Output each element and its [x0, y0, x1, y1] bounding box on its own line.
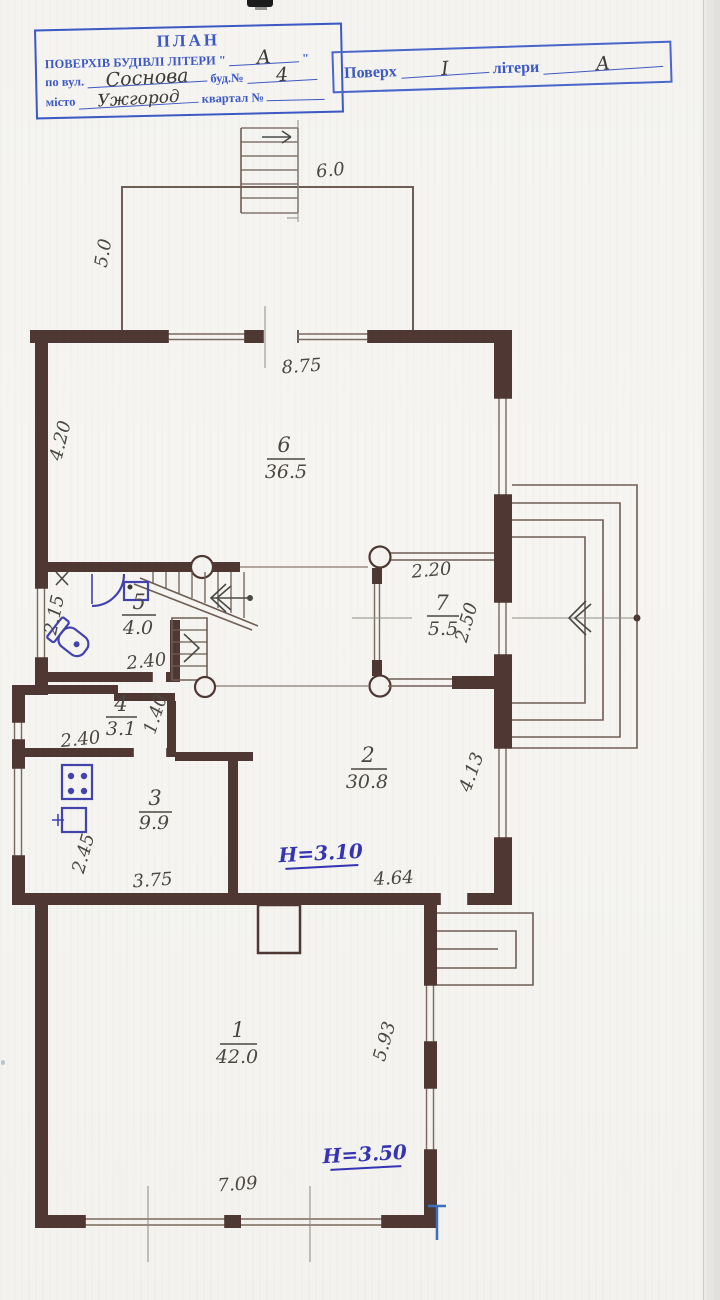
svg-text:Н=3.50: Н=3.50 [321, 1140, 408, 1168]
scan-artifact-top [247, 0, 273, 7]
floor-value: І [400, 61, 489, 79]
letters-value: А [543, 55, 664, 75]
city-label: місто [46, 95, 76, 110]
room-label-1: 1 42.0 [215, 1018, 258, 1068]
floor-plan-drawing: 6.0 5.0 [0, 0, 720, 1300]
svg-text:9.9: 9.9 [139, 812, 169, 834]
letters-label: літери [492, 59, 539, 77]
dim-room7-top: 2.20 [410, 558, 453, 583]
window-bottom-2 [241, 1215, 382, 1228]
svg-text:3: 3 [148, 786, 161, 810]
svg-text:1: 1 [231, 1018, 244, 1042]
house-label: буд.№ [210, 71, 244, 86]
window-kitchen-1 [12, 722, 25, 740]
column-stairs-bottom [195, 677, 215, 697]
letter-suffix: " [302, 51, 309, 65]
height-room1: Н=3.50 [321, 1140, 408, 1170]
top-terrace: 6.0 5.0 [91, 120, 413, 332]
room-label-6: 6 36.5 [265, 433, 307, 483]
window-room1-east-1 [424, 985, 437, 1042]
column-bay-north [370, 547, 391, 568]
dim-room7-right: 2.50 [451, 600, 483, 645]
room-label-3: 3 9.9 [139, 786, 172, 834]
room-label-5: 5 4.0 [122, 590, 156, 639]
dim-room4-width: 2.40 [58, 727, 101, 752]
dim-room6-top: 8.75 [281, 355, 322, 379]
svg-text:2: 2 [360, 743, 374, 767]
block-label: квартал № [201, 90, 264, 105]
svg-text:Н=3.10: Н=3.10 [277, 839, 364, 867]
door-swing-arc [92, 574, 124, 606]
door-to-terrace [263, 330, 298, 343]
svg-text:42.0: 42.0 [215, 1046, 258, 1068]
svg-text:5: 5 [132, 590, 145, 614]
scan-artifact-left [1, 1060, 5, 1065]
window-bottom-1 [85, 1215, 225, 1228]
window-top-left [168, 330, 245, 343]
dim-terrace-width: 6.0 [315, 159, 346, 183]
window-room6-east [494, 398, 512, 495]
window-top-right [298, 330, 368, 343]
dim-room3-bottom: 3.75 [132, 869, 173, 893]
terrace-stairs [241, 120, 298, 222]
dim-room2-right: 4.13 [455, 750, 489, 796]
east-terrace-steps [512, 485, 641, 748]
chimney [258, 905, 300, 953]
opening-room7-east [494, 602, 512, 655]
svg-text:30.8: 30.8 [346, 771, 388, 793]
dim-room1-right: 5.93 [369, 1019, 400, 1063]
svg-text:36.5: 36.5 [265, 461, 307, 483]
scan-artifact-top-2 [255, 7, 267, 10]
city-value: Ужгород [78, 91, 198, 110]
house-number-value: 4 [246, 68, 317, 84]
room-label-2: 2 30.8 [346, 743, 388, 793]
street-label: по вул. [45, 74, 84, 89]
height-room2: Н=3.10 [277, 839, 364, 869]
svg-text:4.0: 4.0 [122, 617, 153, 639]
column-bay-south [370, 676, 391, 697]
svg-text:7: 7 [435, 591, 449, 615]
column-stairs-top [191, 556, 213, 578]
scanner-edge-strip [703, 0, 720, 1300]
letter-value: А [229, 50, 300, 66]
scanned-floor-plan-page: ПЛАН ПОВЕРХІВ БУДІВЛІ ЛІТЕРИ " А " по ву… [0, 0, 720, 1300]
dim-room2-bottom: 4.64 [372, 867, 414, 890]
exterior-walls [12, 306, 512, 1262]
window-room1-east-2 [424, 1088, 437, 1150]
svg-text:4: 4 [113, 692, 127, 716]
door-room2-southeast [440, 893, 468, 905]
dim-room1-bottom: 7.09 [217, 1173, 258, 1197]
title-stamp: ПЛАН ПОВЕРХІВ БУДІВЛІ ЛІТЕРИ " А " по ву… [34, 23, 344, 120]
kitchen-fixtures [52, 765, 92, 832]
window-room2-east [494, 748, 512, 838]
x-mark [56, 572, 68, 585]
southeast-steps [437, 913, 533, 985]
dim-room3-left: 2.45 [68, 831, 100, 876]
block-blank-line [267, 87, 325, 101]
room-labels: 6 36.5 7 5.5 5 4.0 4 3.1 3 9.9 2 30.8 1 … [106, 433, 459, 1068]
window-kitchen-2 [12, 768, 25, 856]
dim-room5-bottom: 2.40 [124, 649, 167, 674]
dim-room6-left: 4.20 [45, 419, 75, 464]
floor-label: Поверх [344, 63, 397, 82]
stamp-line-city: місто Ужгород квартал № [45, 87, 333, 111]
svg-text:3.1: 3.1 [106, 718, 136, 740]
stairs-lower-arrow [184, 634, 199, 662]
dim-terrace-depth: 5.0 [91, 237, 117, 269]
svg-text:6: 6 [277, 433, 290, 457]
street-value: Соснова [87, 70, 207, 89]
sink-icon [52, 808, 86, 832]
stove-icon [62, 765, 92, 799]
